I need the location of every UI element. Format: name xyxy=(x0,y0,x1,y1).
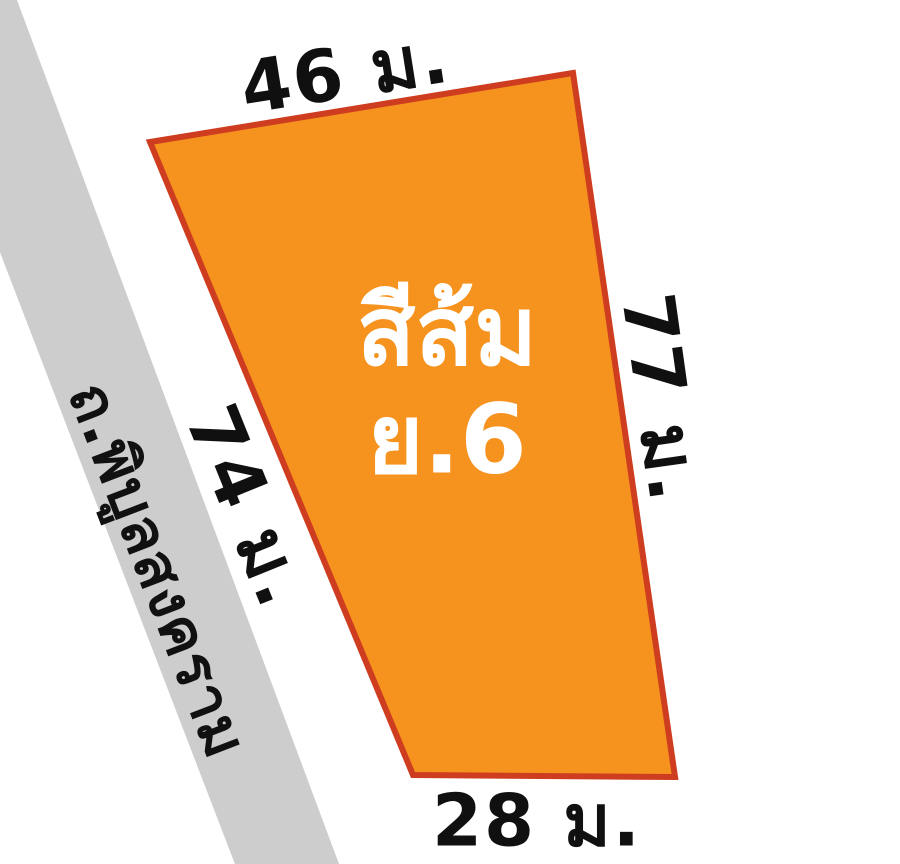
plot-zone-label: สีส้ม ย.6 xyxy=(357,278,537,493)
dimension-label-bottom: 28 ม. xyxy=(432,763,642,864)
plot-zone-label-line2: ย.6 xyxy=(357,386,537,494)
plot-zone-label-line1: สีส้ม xyxy=(357,278,537,386)
land-plot-diagram: 46 ม. 77 ม. 74 ม. 28 ม. ถ.พิบูลสงคราม สี… xyxy=(0,0,900,864)
